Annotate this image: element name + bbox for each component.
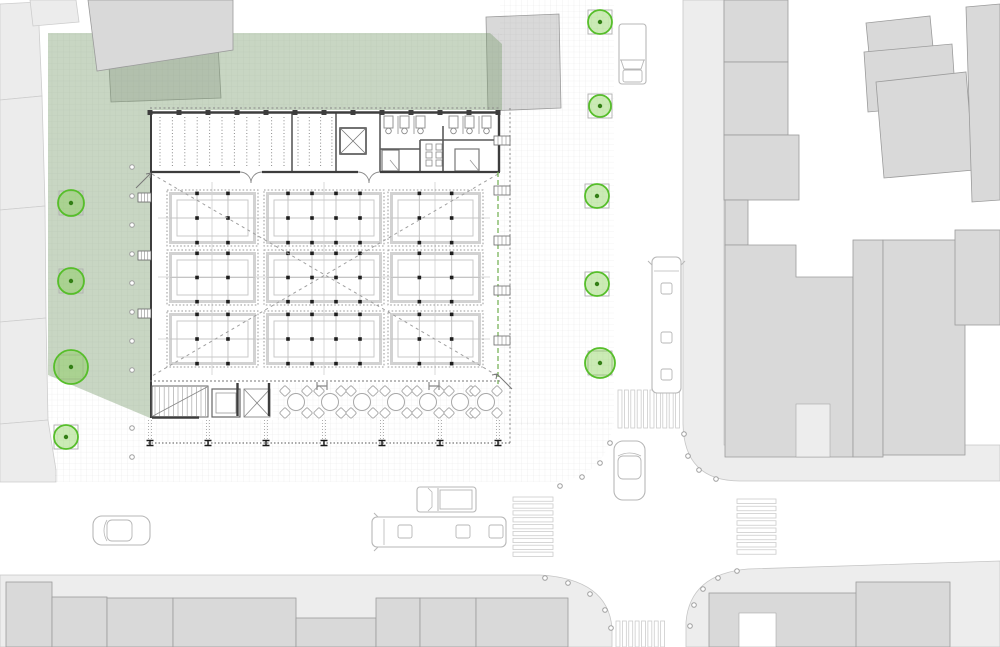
- column-dot: [450, 216, 454, 220]
- column-dot: [286, 313, 290, 317]
- tree-trunk: [598, 104, 602, 108]
- facade-column: [380, 110, 385, 115]
- building-footprint: [724, 135, 799, 200]
- column-dot: [195, 300, 199, 304]
- column-dot: [334, 241, 338, 245]
- bus-body: [372, 517, 506, 547]
- column-dot: [358, 276, 362, 280]
- bollard: [130, 426, 135, 431]
- column-dot: [450, 241, 454, 245]
- column-dot: [226, 313, 230, 317]
- column-dot: [334, 300, 338, 304]
- cafe-table-top: [420, 394, 437, 411]
- column-dot: [226, 252, 230, 256]
- facade-column: [264, 110, 269, 115]
- bollard: [130, 310, 135, 315]
- bollard: [686, 454, 691, 459]
- bollard: [603, 608, 608, 613]
- parcel: [0, 206, 46, 322]
- column-dot: [286, 192, 290, 196]
- column-dot: [310, 300, 314, 304]
- crosswalk-stripe: [654, 621, 658, 647]
- crosswalk-stripe: [663, 390, 667, 428]
- column-dot: [226, 192, 230, 196]
- column-dot: [286, 276, 290, 280]
- crosswalk-stripe: [635, 621, 639, 647]
- column-dot: [418, 300, 422, 304]
- tree: [588, 94, 612, 118]
- crosswalk-stripe: [661, 621, 665, 647]
- tree: [54, 350, 88, 384]
- bollard: [130, 339, 135, 344]
- bollard: [714, 477, 719, 482]
- column-dot: [450, 337, 454, 341]
- bollard: [130, 223, 135, 228]
- crosswalk-stripe: [737, 528, 776, 532]
- bollard: [130, 194, 135, 199]
- facade-louver: [494, 286, 510, 295]
- tree-trunk: [64, 435, 68, 439]
- tree-trunk: [595, 282, 599, 286]
- parcel: [0, 420, 56, 482]
- column-dot: [450, 192, 454, 196]
- facade-column: [235, 110, 240, 115]
- column-dot: [195, 192, 199, 196]
- crosswalk-stripe: [642, 621, 646, 647]
- tree-trunk: [69, 201, 73, 205]
- column-dot: [286, 362, 290, 366]
- crosswalk: [513, 497, 553, 556]
- column-dot: [418, 337, 422, 341]
- facade-column: [177, 110, 182, 115]
- vehicle-pickup_h: [417, 487, 476, 512]
- tree-trunk: [595, 194, 599, 198]
- site-plan-canvas: [0, 0, 1000, 647]
- building-footprint: [725, 200, 748, 245]
- bollard: [598, 461, 603, 466]
- facade-louver: [138, 251, 151, 260]
- parcel: [0, 318, 48, 424]
- column-dot: [418, 216, 422, 220]
- courtyard: [739, 613, 776, 647]
- facade-column: [293, 110, 298, 115]
- building-footprint: [724, 62, 788, 135]
- alley: [796, 404, 830, 457]
- column-dot: [450, 362, 454, 366]
- bollard: [609, 626, 614, 631]
- site-plan-drawing: [0, 0, 1000, 647]
- facade-louver: [494, 236, 510, 245]
- column-dot: [418, 313, 422, 317]
- bollard: [580, 475, 585, 480]
- facade-louver: [494, 336, 510, 345]
- bollard: [716, 576, 721, 581]
- crosswalk-stripe: [513, 552, 553, 556]
- column-dot: [195, 216, 199, 220]
- column-dot: [334, 362, 338, 366]
- column-dot: [310, 337, 314, 341]
- cafe-table-top: [452, 394, 469, 411]
- column-dot: [334, 252, 338, 256]
- building-footprint: [420, 598, 476, 647]
- crosswalk-stripe: [644, 390, 648, 428]
- bollard: [688, 624, 693, 629]
- parcel: [30, 0, 79, 26]
- column-dot: [310, 252, 314, 256]
- cafe-table-top: [478, 394, 495, 411]
- column-dot: [418, 241, 422, 245]
- crosswalk-stripe: [513, 531, 553, 535]
- crosswalk-stripe: [513, 504, 553, 508]
- column-dot: [334, 192, 338, 196]
- cafe-table-top: [322, 394, 339, 411]
- tree: [585, 184, 609, 208]
- crosswalk-stripe: [637, 390, 641, 428]
- facade-column: [322, 110, 327, 115]
- column-dot: [358, 192, 362, 196]
- tree: [588, 10, 612, 34]
- column-dot: [418, 362, 422, 366]
- bollard: [130, 252, 135, 257]
- tree-trunk: [598, 20, 602, 24]
- column-dot: [334, 337, 338, 341]
- building-footprint: [876, 72, 974, 178]
- crosswalk-stripe: [737, 514, 776, 518]
- crosswalk-stripe: [513, 511, 553, 515]
- vehicle-car_v: [614, 441, 645, 500]
- bollard: [735, 569, 740, 574]
- tree-trunk: [69, 365, 73, 369]
- column-dot: [310, 362, 314, 366]
- tree: [585, 348, 615, 378]
- column-dot: [450, 313, 454, 317]
- crosswalk-stripe: [513, 545, 553, 549]
- column-dot: [358, 300, 362, 304]
- crosswalk-stripe: [737, 521, 776, 525]
- bollard: [130, 281, 135, 286]
- facade-louver: [494, 186, 510, 195]
- bollard: [697, 468, 702, 473]
- column-dot: [226, 300, 230, 304]
- column-dot: [418, 252, 422, 256]
- column-dot: [310, 216, 314, 220]
- column-dot: [358, 362, 362, 366]
- column-dot: [334, 313, 338, 317]
- crosswalk-stripe: [656, 390, 660, 428]
- tree: [585, 272, 609, 296]
- tree: [58, 190, 84, 216]
- facade-column: [438, 110, 443, 115]
- crosswalk-stripe: [737, 550, 776, 554]
- column-dot: [334, 276, 338, 280]
- building-footprint: [376, 598, 420, 647]
- column-dot: [286, 300, 290, 304]
- tree-trunk: [598, 361, 602, 365]
- facade-louver: [494, 136, 510, 145]
- building-footprint: [52, 597, 107, 647]
- facade-column: [351, 110, 356, 115]
- bollard: [543, 576, 548, 581]
- column-dot: [286, 241, 290, 245]
- cafe-table-top: [388, 394, 405, 411]
- building-footprint: [173, 598, 296, 647]
- building-footprint: [6, 582, 52, 647]
- bollard: [566, 581, 571, 586]
- bollard: [608, 441, 613, 446]
- facade-louver: [138, 309, 151, 318]
- column-dot: [226, 276, 230, 280]
- crosswalk-stripe: [737, 506, 776, 510]
- column-dot: [358, 216, 362, 220]
- cafe-table-top: [288, 394, 305, 411]
- column-dot: [226, 337, 230, 341]
- building-footprint: [966, 4, 1000, 202]
- vehicle-bus_h: [372, 513, 506, 551]
- crosswalk-stripe: [513, 497, 553, 501]
- column-dot: [310, 241, 314, 245]
- parcel: [0, 96, 45, 210]
- building-footprint: [856, 582, 950, 647]
- bollard: [130, 368, 135, 373]
- crosswalk-stripe: [737, 535, 776, 539]
- building-footprint: [724, 0, 788, 62]
- building-footprint: [476, 598, 568, 647]
- tree-trunk: [69, 279, 73, 283]
- building-footprint: [725, 245, 853, 457]
- column-dot: [226, 241, 230, 245]
- bollard: [701, 587, 706, 592]
- column-dot: [310, 313, 314, 317]
- column-dot: [195, 252, 199, 256]
- column-dot: [195, 276, 199, 280]
- column-dot: [310, 192, 314, 196]
- column-dot: [195, 313, 199, 317]
- bollard: [130, 455, 135, 460]
- crosswalk-stripe: [631, 390, 635, 428]
- tree: [58, 268, 84, 294]
- crosswalk-stripe: [669, 390, 673, 428]
- bollard: [682, 432, 687, 437]
- building-footprint: [107, 598, 173, 647]
- vehicle-van_v: [619, 24, 646, 84]
- pickup-body: [417, 487, 476, 512]
- crosswalk-stripe: [513, 518, 553, 522]
- column-dot: [286, 216, 290, 220]
- bus-body: [652, 257, 681, 393]
- column-dot: [418, 192, 422, 196]
- column-dot: [358, 241, 362, 245]
- column-dot: [418, 276, 422, 280]
- column-dot: [358, 313, 362, 317]
- column-dot: [286, 337, 290, 341]
- crosswalk-stripe: [618, 390, 622, 428]
- bollard: [558, 484, 563, 489]
- crosswalk-stripe: [648, 621, 652, 647]
- column-dot: [195, 241, 199, 245]
- column-dot: [450, 252, 454, 256]
- facade-louver: [138, 193, 151, 202]
- crosswalk-stripe: [616, 621, 620, 647]
- crosswalk-stripe: [622, 621, 626, 647]
- column-dot: [358, 337, 362, 341]
- facade-column: [467, 110, 472, 115]
- crosswalk-stripe: [676, 390, 680, 428]
- crosswalk-stripe: [513, 525, 553, 529]
- plaza-paving: [55, 418, 612, 482]
- cafe-table-top: [354, 394, 371, 411]
- crosswalk-stripe: [513, 538, 553, 542]
- column-dot: [195, 337, 199, 341]
- crosswalk-stripe: [629, 621, 633, 647]
- column-dot: [310, 276, 314, 280]
- building-footprint: [853, 240, 883, 457]
- facade-column: [409, 110, 414, 115]
- vehicle-car_h: [93, 516, 150, 545]
- building-footprint: [955, 230, 1000, 325]
- facade-column: [206, 110, 211, 115]
- bollard: [130, 165, 135, 170]
- bollard: [692, 603, 697, 608]
- building-footprint: [883, 240, 965, 455]
- column-dot: [226, 362, 230, 366]
- building-footprint: [296, 618, 376, 647]
- crosswalk-stripe: [737, 543, 776, 547]
- crosswalk-stripe: [737, 499, 776, 503]
- bollard: [588, 592, 593, 597]
- car-body: [614, 441, 645, 500]
- tree: [54, 425, 78, 449]
- column-dot: [450, 276, 454, 280]
- vehicle-bus_v: [648, 257, 685, 393]
- column-dot: [334, 216, 338, 220]
- column-dot: [450, 300, 454, 304]
- crosswalk-stripe: [624, 390, 628, 428]
- crosswalk-stripe: [650, 390, 654, 428]
- column-dot: [195, 362, 199, 366]
